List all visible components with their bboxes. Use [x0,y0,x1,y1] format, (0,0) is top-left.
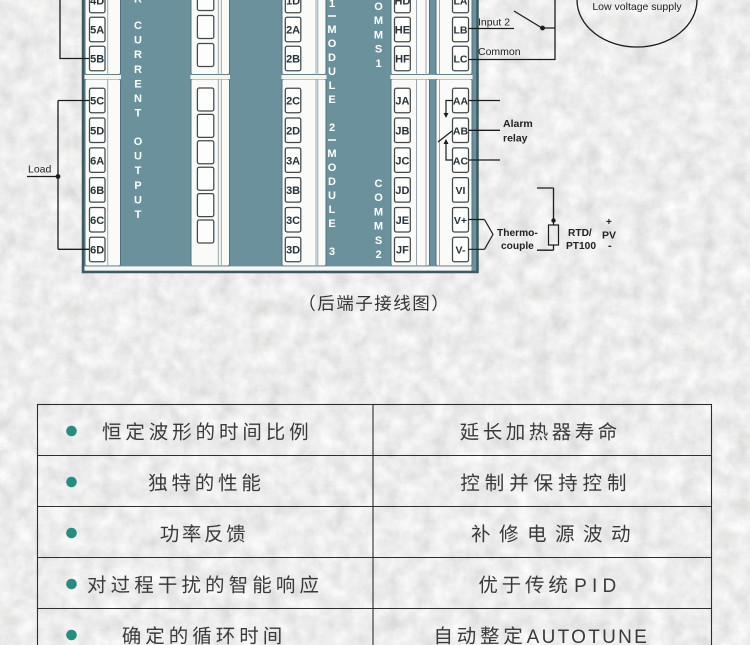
svg-text:6A: 6A [90,155,104,167]
svg-text:-: - [608,240,612,252]
svg-text:Thermo-: Thermo- [497,228,538,239]
svg-text:relay: relay [503,133,528,145]
svg-text:U: U [328,66,336,78]
svg-text:LB: LB [454,25,468,37]
svg-text:M: M [374,15,383,27]
svg-text:V-: V- [456,245,466,257]
svg-text:R: R [134,64,142,76]
svg-text:+: + [606,217,612,228]
svg-text:M: M [327,148,336,160]
svg-text:1: 1 [329,0,335,10]
svg-text:JF: JF [396,245,409,257]
svg-text:M: M [327,24,336,36]
svg-text:O: O [328,162,337,174]
svg-text:T: T [135,108,142,120]
svg-text:E: E [328,218,335,230]
svg-text:3A: 3A [286,155,300,167]
svg-text:VI: VI [456,185,466,197]
svg-text:AC: AC [453,155,469,167]
svg-text:AA: AA [453,96,469,108]
svg-text:HF: HF [395,54,410,66]
svg-text:2D: 2D [286,126,300,138]
svg-text:JE: JE [396,215,409,227]
svg-text:R: R [134,49,142,61]
svg-text:P: P [134,180,141,192]
svg-text:O: O [134,136,143,148]
svg-text:4D: 4D [90,0,104,8]
svg-text:AB: AB [453,126,469,138]
svg-text:D: D [328,52,336,64]
svg-text:JD: JD [395,185,409,197]
svg-text:JC: JC [395,155,409,167]
svg-text:6C: 6C [90,215,104,227]
svg-text:O: O [374,192,383,204]
svg-text:5B: 5B [90,54,104,66]
svg-text:Load: Load [28,164,52,176]
svg-text:2C: 2C [286,96,300,108]
svg-text:Alarm: Alarm [503,118,533,130]
svg-text:C: C [375,178,383,190]
svg-text:L: L [329,80,336,92]
svg-text:couple: couple [501,241,534,252]
svg-text:O: O [328,38,337,50]
svg-text:Low voltage supply: Low voltage supply [592,1,682,13]
svg-text:R: R [134,0,142,6]
svg-text:LA: LA [454,0,468,8]
svg-text:JA: JA [395,96,409,108]
svg-text:3D: 3D [286,245,300,257]
svg-text:3C: 3C [286,215,300,227]
svg-text:U: U [134,151,142,163]
svg-text:E: E [328,94,335,106]
svg-text:AUTOTUNE: AUTOTUNE [527,627,650,645]
svg-text:E: E [134,78,141,90]
svg-text:2B: 2B [286,54,300,66]
svg-text:6D: 6D [90,245,104,257]
svg-text:3B: 3B [286,185,300,197]
svg-text:2: 2 [329,122,335,134]
svg-text:S: S [375,235,382,247]
svg-text:PT100: PT100 [566,241,596,252]
svg-text:V+: V+ [454,215,467,227]
svg-text:HD: HD [394,0,410,8]
svg-text:N: N [134,93,142,105]
svg-text:JB: JB [395,126,409,138]
svg-text:U: U [328,190,336,202]
svg-text:1D: 1D [286,0,300,8]
svg-text:5C: 5C [90,96,104,108]
svg-text:S: S [375,44,382,56]
svg-text:C: C [134,20,142,32]
svg-text:3: 3 [329,246,335,258]
svg-text:RTD/: RTD/ [568,228,592,239]
svg-text:HE: HE [395,25,410,37]
svg-text:O: O [374,1,383,13]
svg-text:Input 2: Input 2 [478,17,510,29]
svg-text:D: D [328,176,336,188]
svg-text:U: U [134,35,142,47]
svg-text:5D: 5D [90,126,104,138]
svg-text:LC: LC [454,54,468,66]
svg-text:Common: Common [478,46,521,58]
svg-text:1: 1 [375,58,381,70]
svg-text:2A: 2A [286,25,300,37]
svg-text:T: T [135,209,142,221]
svg-text:6B: 6B [90,185,104,197]
svg-text:PID: PID [574,576,621,597]
svg-text:L: L [329,204,336,216]
svg-text:T: T [135,165,142,177]
svg-text:5A: 5A [90,25,104,37]
svg-text:2: 2 [375,249,381,261]
svg-text:M: M [374,206,383,218]
svg-text:M: M [374,29,383,41]
svg-text:U: U [134,194,142,206]
svg-text:M: M [374,221,383,233]
